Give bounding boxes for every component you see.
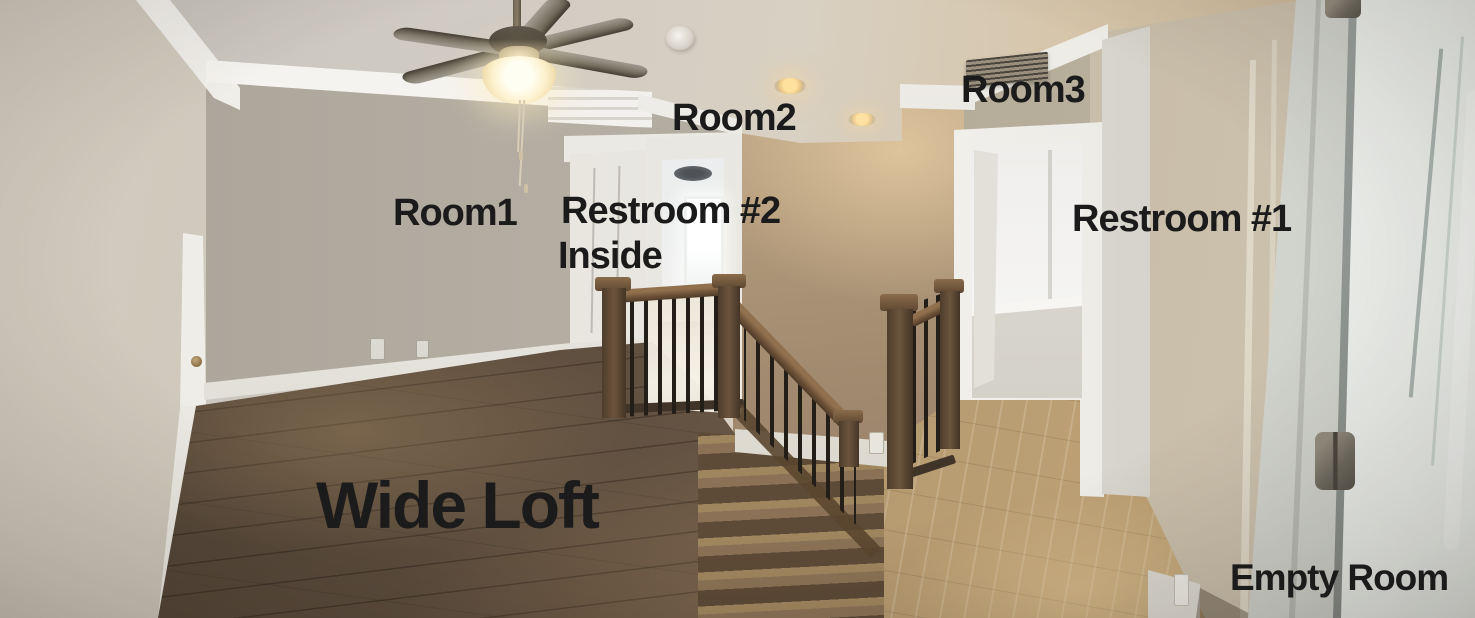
newel-post <box>887 309 913 489</box>
label-restroom1: Restroom #1 <box>1072 200 1291 238</box>
label-room1: Room1 <box>393 194 517 232</box>
label-room2: Room2 <box>672 99 796 137</box>
door-knob <box>191 356 202 367</box>
newel-post <box>718 286 740 418</box>
door-hinge <box>1315 432 1355 490</box>
label-room3: Room3 <box>961 71 1085 109</box>
pull-chain-finial <box>524 184 528 193</box>
wall-switch <box>1174 574 1189 606</box>
label-restroom2-line2: Inside <box>558 237 662 275</box>
loft-interior-photo: Room1 Restroom #2 Inside Room2 Room3 Res… <box>0 0 1475 618</box>
newel-post <box>940 291 960 449</box>
newel-post <box>602 288 626 418</box>
label-restroom2-line1: Restroom #2 <box>561 192 780 230</box>
pull-chain-finial <box>519 151 523 160</box>
label-wide-loft: Wide Loft <box>316 472 598 538</box>
label-empty-room: Empty Room <box>1230 559 1448 596</box>
room2-ceiling-fan <box>674 166 712 181</box>
newel-post <box>839 421 859 467</box>
wall-outlet <box>869 432 884 454</box>
door-hinge <box>1325 0 1361 18</box>
wall-outlet <box>370 338 385 360</box>
wall-outlet <box>416 340 429 358</box>
